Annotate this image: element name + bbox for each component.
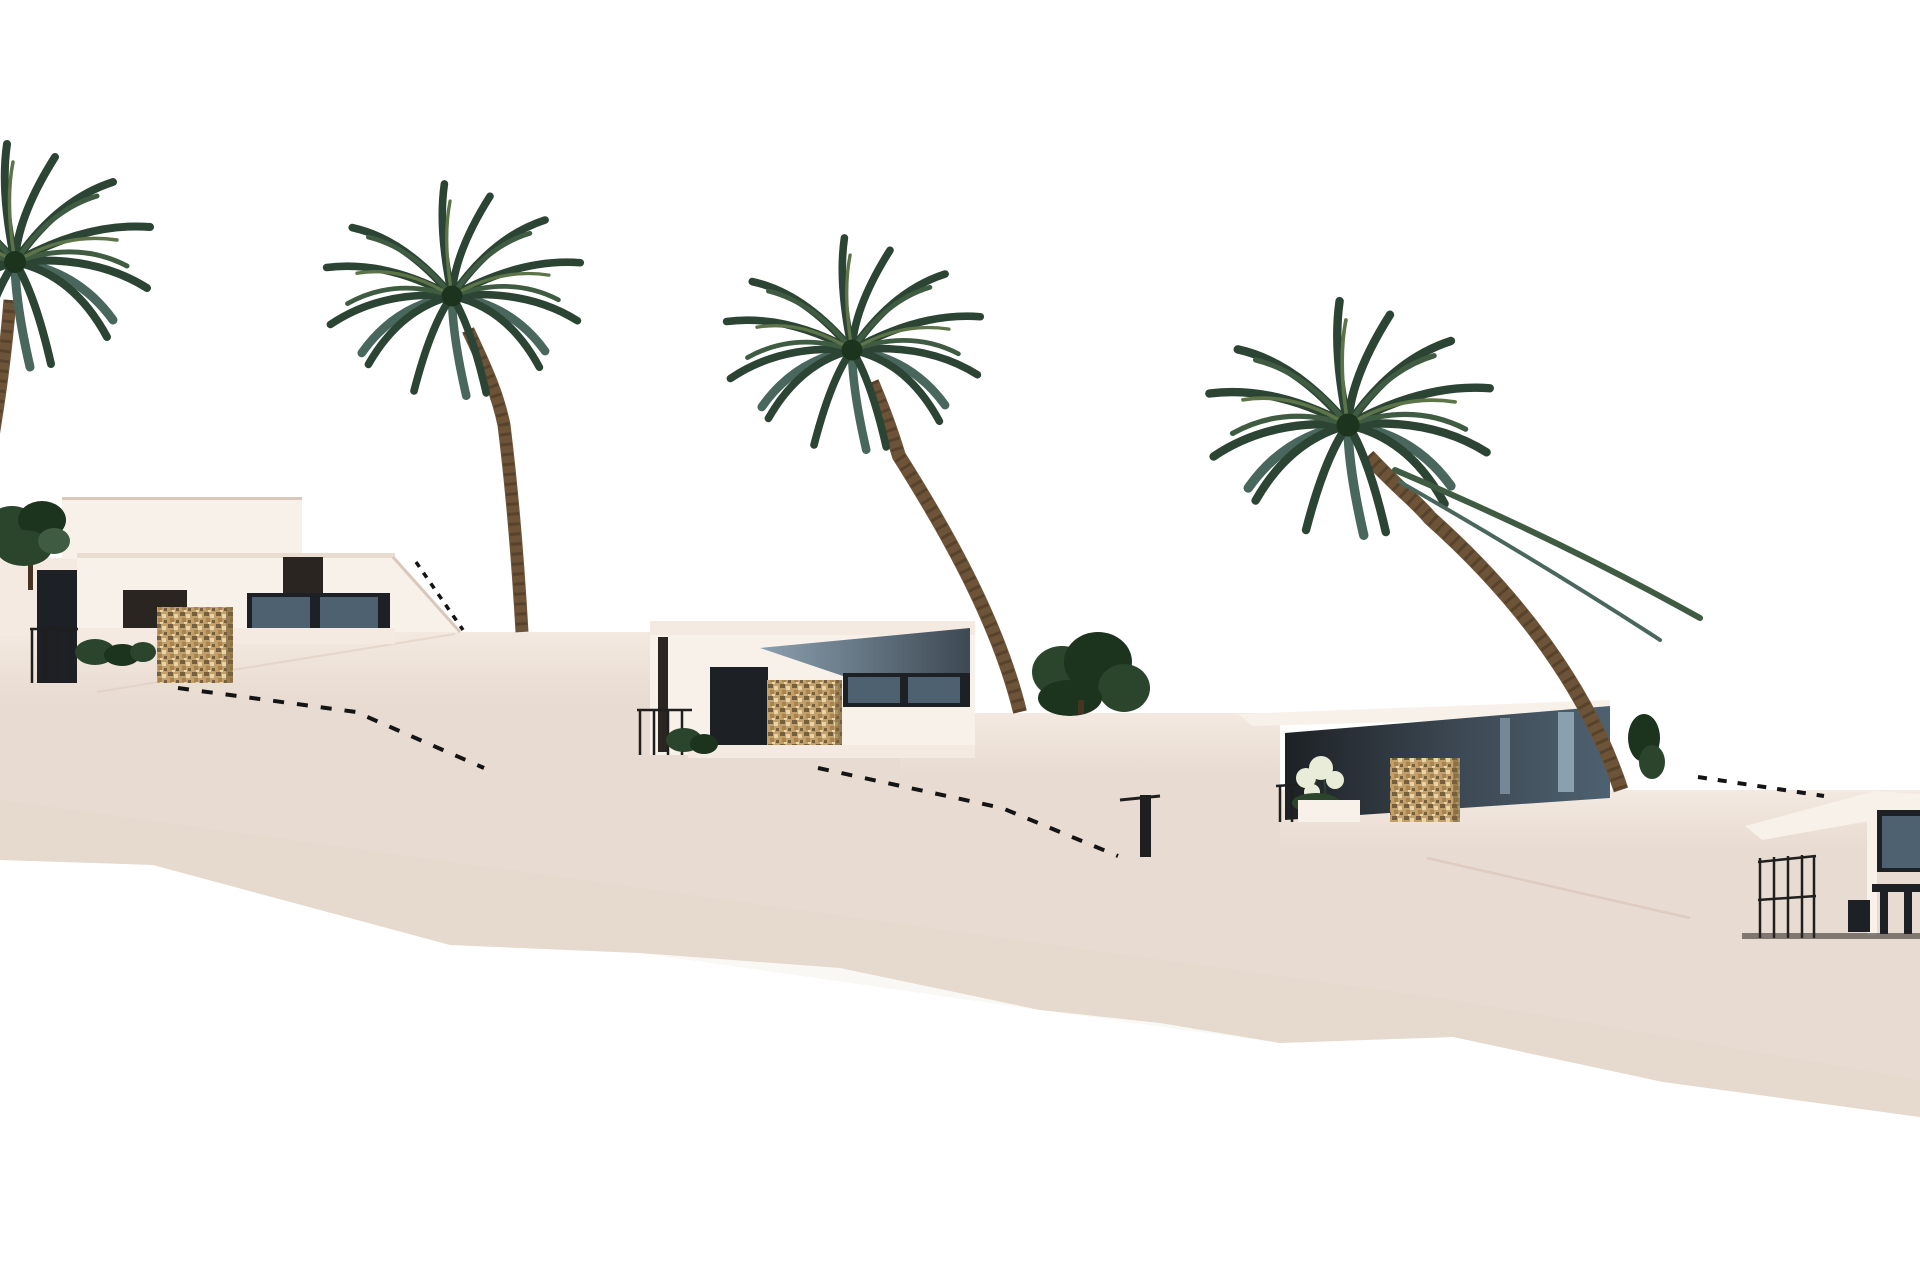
architectural-render-canvas [0,0,1920,1280]
villa1-glass-pane [252,597,310,628]
villa3-glass-light-pane [1558,712,1574,792]
villa1-upper-roof-edge [62,497,302,500]
palm4-base-fronds [1628,714,1665,779]
villa3-glass-light-pane-2 [1500,718,1510,794]
villa-2 [637,621,975,758]
villa1-roof-slab-edge [77,553,395,558]
villa2-post [658,637,668,752]
villa4-ground-shadow [1742,933,1920,939]
villa4-glass [1882,816,1920,868]
bush-cluster-center [1032,632,1150,716]
villa2-window-opening [710,667,768,748]
villa2-base-parapet [688,745,975,758]
villa2-glass-pane [848,677,900,703]
villa1-chimney [283,557,323,595]
villa1-upper-roof-volume [62,497,302,559]
palm-tree-1 [0,144,150,465]
render-scene [0,0,1920,1280]
villa3-stone-pillar [1390,758,1460,822]
villa1-stone-pillar [157,607,233,683]
palm2-trunk [468,330,522,632]
villa1-glass-pane-2 [320,597,378,628]
villa1-parapet [77,628,395,644]
palm4-drooping-frond [1395,470,1700,618]
villa2-glass-pane-2 [908,677,960,703]
villa2-stone-pillar [767,680,842,755]
